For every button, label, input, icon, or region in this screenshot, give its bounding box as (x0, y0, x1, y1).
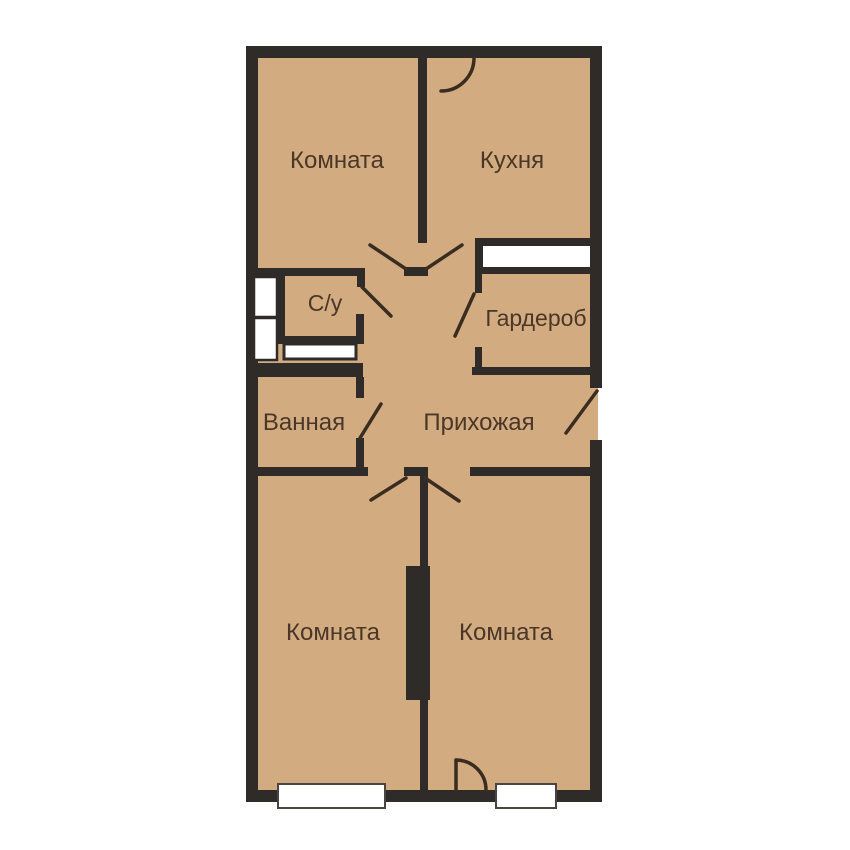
wall-room-kitchen (418, 58, 427, 243)
wall-bathroom-top (246, 363, 363, 377)
wall-bathroom-right-upper (356, 377, 364, 398)
floor-plan-canvas: Комната Кухня С/у Гардероб Ванная Прихож… (0, 0, 850, 850)
shaft-upper (254, 277, 277, 317)
room-label-room-bottom-right: Комната (459, 619, 554, 646)
wall-hall-bottom-right (470, 467, 602, 476)
room-label-hallway: Прихожая (423, 409, 534, 436)
floor-plan: Комната Кухня С/у Гардероб Ванная Прихож… (0, 0, 850, 850)
window-room-bottom-left (278, 784, 385, 808)
wall-toilet-right-stub (357, 268, 365, 287)
wall-hall-bottom-stub (404, 467, 428, 476)
wall-bathroom-right-lower (356, 438, 364, 468)
wall-outer-top (246, 46, 602, 58)
window-room-bottom-right (496, 784, 556, 808)
wall-wardrobe-left-upper (475, 274, 482, 293)
wall-outer-right-upper (590, 46, 602, 388)
wall-outer-right-lower (590, 440, 602, 802)
bathtub-box (284, 344, 356, 359)
wall-wardrobe-bottom (472, 367, 602, 375)
room-label-wardrobe: Гардероб (485, 305, 586, 331)
wall-toilet-top (246, 268, 365, 276)
wall-hall-bottom-left (246, 467, 368, 476)
room-label-bathroom: Ванная (263, 409, 345, 436)
cabinet-kitchen-wardrobe (483, 246, 590, 267)
wall-outer-left (246, 46, 258, 802)
shaft-lower (254, 318, 277, 360)
room-label-toilet: С/у (308, 290, 343, 316)
wall-bottom-rooms-pier (406, 566, 430, 700)
room-label-room-top-left: Комната (290, 147, 385, 174)
room-label-room-bottom-left: Комната (286, 619, 381, 646)
room-label-kitchen: Кухня (480, 147, 544, 174)
